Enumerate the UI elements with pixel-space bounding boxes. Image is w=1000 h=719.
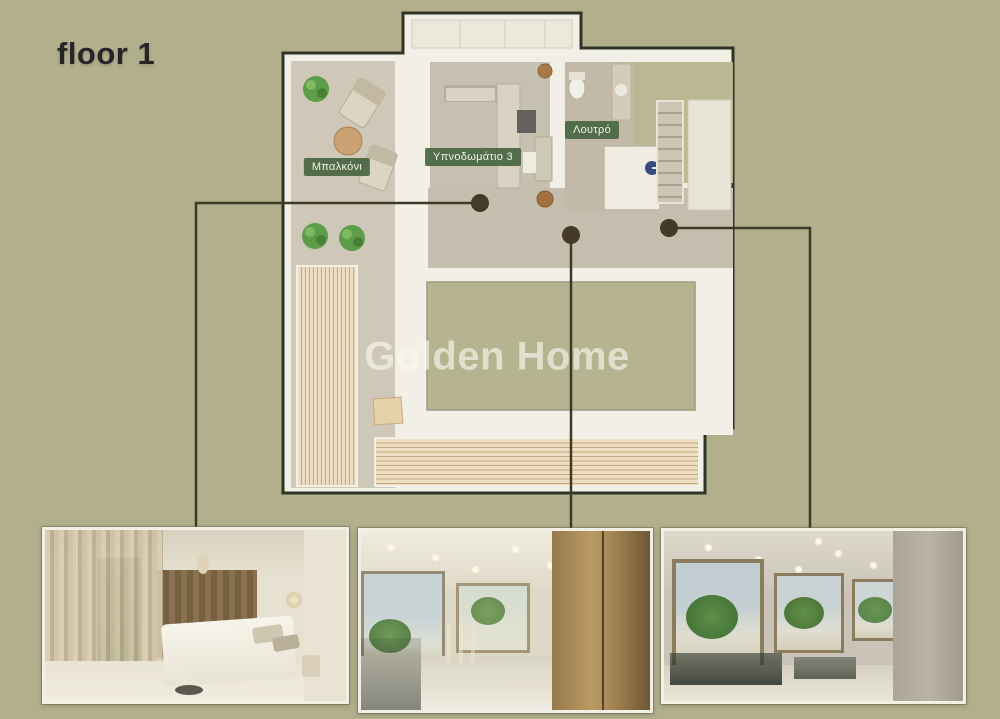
plant-icon — [302, 223, 328, 249]
wall-lamp — [286, 592, 302, 608]
floor-item — [175, 685, 203, 695]
palm-tree — [686, 595, 738, 639]
spotlight — [471, 565, 480, 574]
flyer-page: floor 1 — [0, 0, 1000, 719]
thumbnail-corridor-photo — [661, 528, 966, 704]
stair-void — [361, 638, 421, 710]
plant-icon — [303, 76, 329, 102]
bed — [444, 85, 497, 184]
pergola-deck-slats — [374, 437, 700, 487]
toilet — [569, 77, 585, 99]
round-table — [334, 127, 362, 155]
palm-tree — [784, 597, 824, 629]
stool — [538, 64, 552, 78]
bedside-table — [302, 655, 320, 677]
spotlight — [386, 543, 395, 552]
sink — [615, 84, 627, 96]
tree — [471, 597, 505, 625]
spotlight — [814, 537, 823, 546]
plant-icon — [339, 225, 365, 251]
wardrobe-seam — [602, 531, 604, 713]
glass-railing — [670, 653, 782, 685]
toilet-tank — [569, 72, 585, 80]
wood-wardrobe — [552, 531, 650, 713]
balcony-deck-slats — [296, 265, 358, 487]
side-unit — [535, 137, 552, 181]
label-balcony: Μπαλκόνι — [304, 158, 370, 176]
pendant-lamp — [197, 554, 209, 574]
palm-tree — [858, 597, 892, 623]
spotlight — [511, 545, 520, 554]
dresser — [517, 110, 536, 133]
thumbnail-bedroom-photo — [42, 527, 349, 704]
hanging-lights — [447, 623, 481, 663]
spotlight — [431, 553, 440, 562]
concrete-column — [893, 531, 963, 704]
night-table — [523, 152, 536, 173]
stair-landing — [688, 100, 731, 210]
stool — [537, 191, 553, 207]
wardrobe — [497, 84, 520, 188]
spotlight — [834, 549, 843, 558]
thumbnail-landing-photo — [358, 528, 653, 713]
spotlight — [704, 543, 713, 552]
staircase — [656, 100, 684, 204]
glass-railing — [794, 657, 856, 679]
label-bathroom: Λουτρό — [565, 121, 619, 139]
closet-area — [412, 20, 572, 48]
planter-box — [373, 397, 403, 425]
wc-cabin — [604, 146, 660, 210]
spotlight — [869, 561, 878, 570]
pillow — [272, 634, 300, 652]
brand-watermark: Golden Home — [364, 335, 630, 380]
right-wall — [304, 530, 346, 704]
label-bedroom-3: Υπνοδωμάτιο 3 — [425, 148, 521, 166]
